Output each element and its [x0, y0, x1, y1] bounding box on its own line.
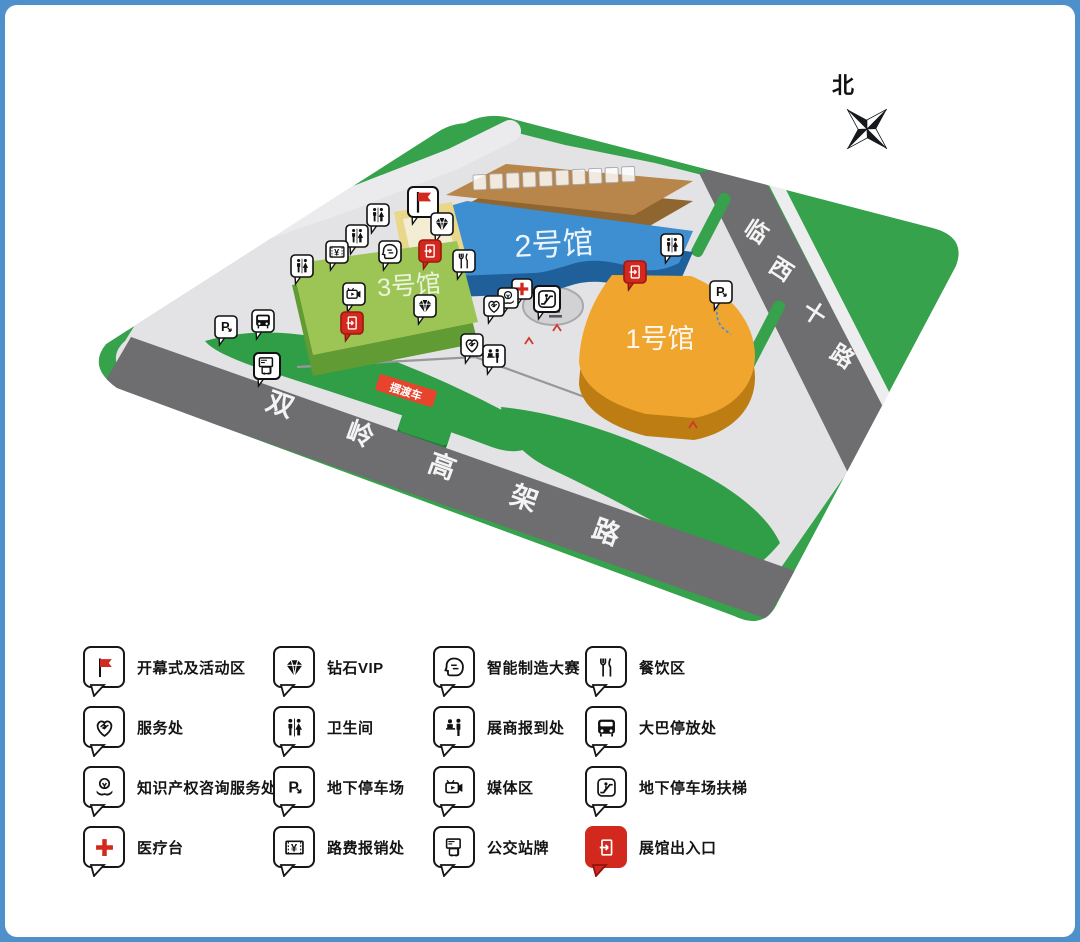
legend-label: 公交站牌 [487, 837, 549, 858]
legend-label: 开幕式及活动区 [137, 657, 246, 678]
legend-item-knowledge: 知识产权咨询服务处 [83, 766, 273, 808]
svg-text:P: P [288, 779, 299, 796]
legend-item-exit: 展馆出入口 [585, 826, 775, 868]
bus-icon [585, 706, 627, 748]
exit-icon [585, 826, 627, 868]
legend-item-restroom: 卫生间 [273, 706, 433, 748]
svg-text:P: P [716, 284, 725, 299]
svg-text:P: P [221, 319, 230, 334]
compass-north-label: 北 [832, 73, 854, 98]
legend-item-aihead: 智能制造大赛 [433, 646, 585, 688]
legend-item-service: 服务处 [83, 706, 273, 748]
compass-star-icon [827, 89, 906, 168]
legend-item-regdesk: 展商报到处 [433, 706, 585, 748]
media-icon [433, 766, 475, 808]
parking-icon: P [273, 766, 315, 808]
escalator-icon [585, 766, 627, 808]
aihead-icon [433, 646, 475, 688]
service-icon [83, 706, 125, 748]
legend-label: 地下停车场扶梯 [639, 777, 748, 798]
legend-item-bus: 大巴停放处 [585, 706, 775, 748]
legend-label: 展馆出入口 [639, 837, 717, 858]
legend-label: 钻石VIP [327, 657, 384, 678]
legend-label: 路费报销处 [327, 837, 405, 858]
legend-label: 卫生间 [327, 717, 374, 738]
legend: 开幕式及活动区钻石VIP智能制造大赛餐饮区服务处卫生间展商报到处大巴停放处知识产… [83, 637, 775, 877]
legend-label: 地下停车场 [327, 777, 405, 798]
legend-label: 服务处 [137, 717, 184, 738]
legend-item-diamond: 钻石VIP [273, 646, 433, 688]
legend-item-busstop: 公交站牌 [433, 826, 585, 868]
dining-icon [585, 646, 627, 688]
legend-item-escalator: 地下停车场扶梯 [585, 766, 775, 808]
legend-label: 知识产权咨询服务处 [137, 777, 277, 798]
page: 双岭高架路 临西十路 [5, 5, 1075, 937]
legend-label: 智能制造大赛 [487, 657, 580, 678]
hall1-label: 1号馆 [625, 324, 694, 354]
legend-label: 展商报到处 [487, 717, 565, 738]
knowledge-icon [83, 766, 125, 808]
flag-icon [83, 646, 125, 688]
medical-icon [83, 826, 125, 868]
diamond-icon [273, 646, 315, 688]
regdesk-icon [433, 706, 475, 748]
legend-label: 医疗台 [137, 837, 184, 858]
compass: 北 [827, 73, 906, 169]
svg-text:¥: ¥ [290, 842, 297, 854]
legend-item-media: 媒体区 [433, 766, 585, 808]
legend-item-parking: P地下停车场 [273, 766, 433, 808]
legend-item-medical: 医疗台 [83, 826, 273, 868]
legend-label: 媒体区 [487, 777, 534, 798]
hall2-label: 2号馆 [513, 225, 594, 264]
legend-item-flag: 开幕式及活动区 [83, 646, 273, 688]
site-map: 双岭高架路 临西十路 [5, 5, 1075, 635]
legend-item-toll: ¥路费报销处 [273, 826, 433, 868]
legend-item-dining: 餐饮区 [585, 646, 775, 688]
toll-icon: ¥ [273, 826, 315, 868]
busstop-icon [433, 826, 475, 868]
legend-label: 大巴停放处 [639, 717, 717, 738]
legend-label: 餐饮区 [639, 657, 686, 678]
restroom-icon [273, 706, 315, 748]
